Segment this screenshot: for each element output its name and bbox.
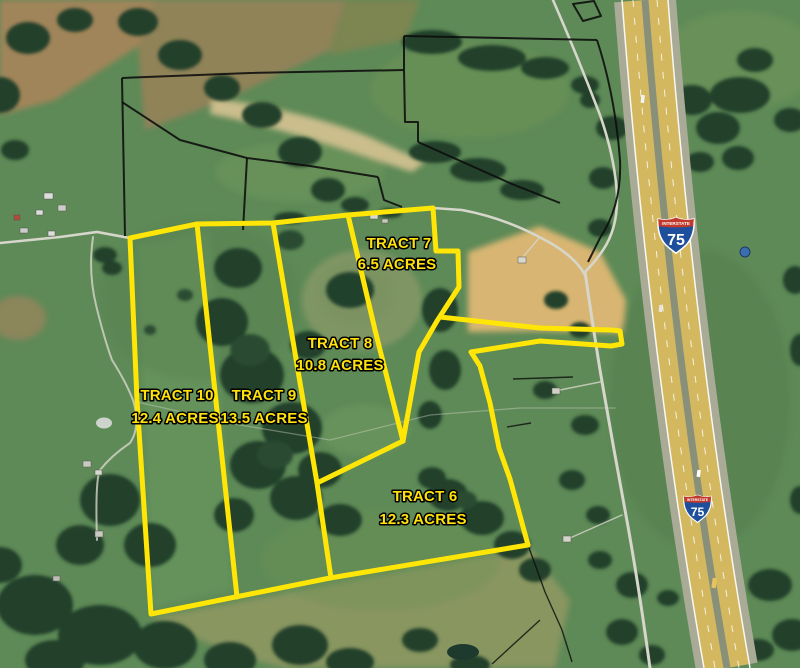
tract-10-acres: 12.4 ACRES bbox=[131, 410, 218, 427]
tract-7-name: TRACT 7 bbox=[367, 235, 432, 252]
shield-header-text: INTERSTATE bbox=[662, 221, 690, 226]
shield-route-number: 75 bbox=[667, 232, 685, 249]
tract-9-acres: 13.5 ACRES bbox=[220, 410, 307, 427]
pond-dark bbox=[447, 644, 479, 660]
shield-route-number: 75 bbox=[691, 505, 705, 519]
pond-blue bbox=[740, 247, 750, 257]
shield-header-text: INTERSTATE bbox=[687, 498, 709, 502]
tract-8-acres: 10.8 ACRES bbox=[296, 357, 383, 374]
tract-6-name: TRACT 6 bbox=[393, 488, 458, 505]
tract-6-acres: 12.3 ACRES bbox=[379, 511, 466, 528]
tract-9-name: TRACT 9 bbox=[232, 387, 297, 404]
pond-light bbox=[96, 418, 112, 429]
aerial-map-canvas: TRACT 7 6.5 ACRES TRACT 8 10.8 ACRES TRA… bbox=[0, 0, 800, 668]
tract-7-acres: 6.5 ACRES bbox=[358, 256, 437, 273]
tract-10-name: TRACT 10 bbox=[140, 387, 213, 404]
aerial-map: TRACT 7 6.5 ACRES TRACT 8 10.8 ACRES TRA… bbox=[0, 0, 800, 668]
tract-8-name: TRACT 8 bbox=[308, 335, 373, 352]
